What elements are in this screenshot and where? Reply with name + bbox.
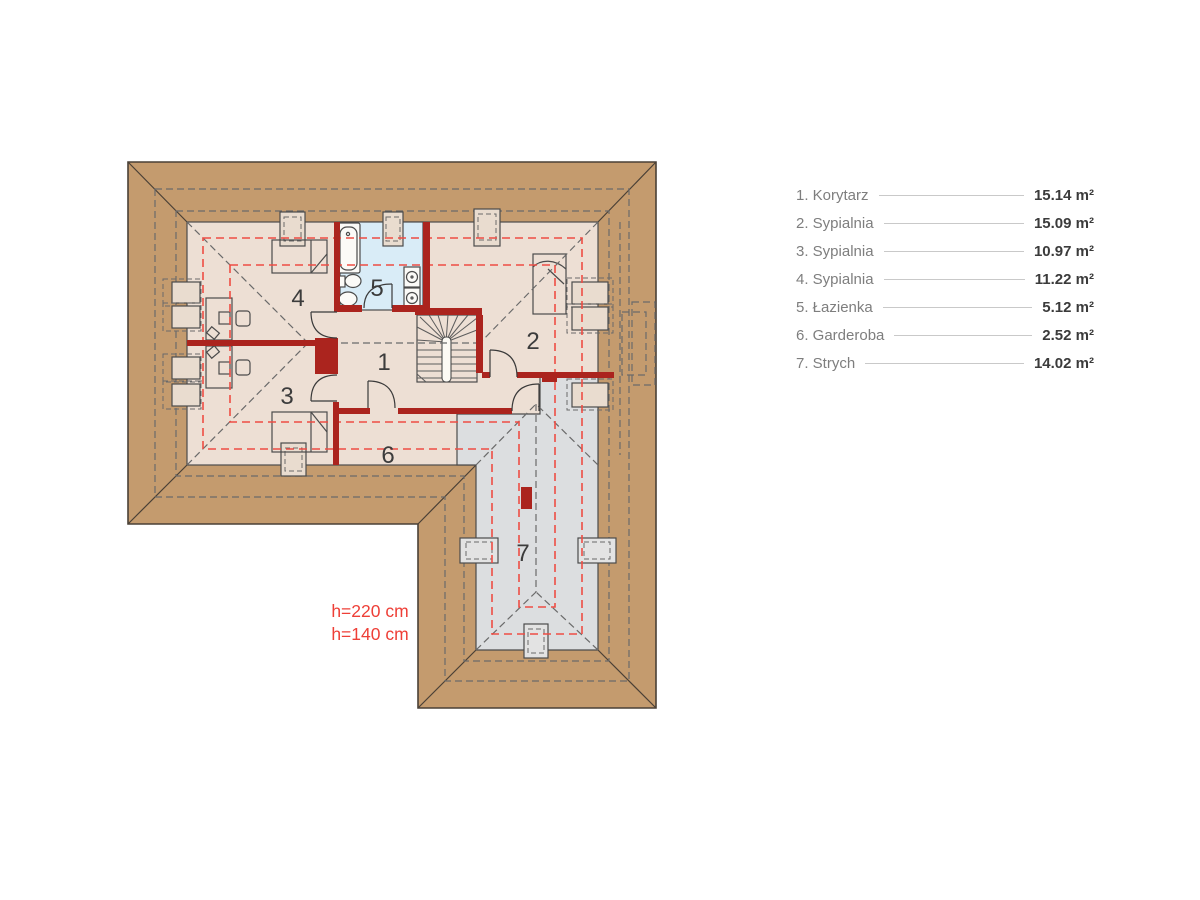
legend-divider-line: [884, 223, 1024, 224]
legend-room-area: 5.12 m²: [1042, 299, 1094, 316]
legend-row: 5. Łazienka 5.12 m²: [796, 293, 1094, 321]
legend-room-label: 4. Sypialnia: [796, 271, 874, 288]
legend-room-label: 7. Strych: [796, 355, 855, 372]
legend-room-label: 1. Korytarz: [796, 187, 869, 204]
room-number-5: 5: [370, 275, 383, 302]
washer: [404, 267, 420, 308]
room-number-4: 4: [291, 285, 304, 312]
legend-room-area: 10.97 m²: [1034, 243, 1094, 260]
height-labels: h=220 cm h=140 cm: [331, 601, 408, 644]
roof-window: [172, 306, 200, 328]
roof-window: [172, 282, 200, 303]
legend-room-area: 15.09 m²: [1034, 215, 1094, 232]
floor-plan-drawing: 1 2 3 4 5 6 7 h=220 cm h=140 cm: [0, 0, 1200, 900]
room-number-6: 6: [381, 442, 394, 469]
legend-divider-line: [883, 307, 1033, 308]
chimney-red: [521, 487, 532, 509]
legend-room-area: 11.22 m²: [1035, 271, 1094, 288]
roof-window: [572, 383, 608, 407]
floor-plan-page: 1 2 3 4 5 6 7 h=220 cm h=140 cm 1. Koryt…: [0, 0, 1200, 900]
legend-row: 1. Korytarz 15.14 m²: [796, 181, 1094, 209]
legend-divider-line: [879, 195, 1024, 196]
legend-room-area: 14.02 m²: [1034, 355, 1094, 372]
toilet: [338, 275, 361, 288]
legend-room-label: 3. Sypialnia: [796, 243, 874, 260]
legend-divider-line: [894, 335, 1032, 336]
legend-room-area: 15.14 m²: [1034, 187, 1094, 204]
attic-floor: [457, 377, 598, 650]
stair-newel: [442, 337, 451, 382]
room-legend: 1. Korytarz 15.14 m² 2. Sypialnia 15.09 …: [796, 181, 1094, 377]
roof-window: [572, 282, 608, 304]
legend-row: 2. Sypialnia 15.09 m²: [796, 209, 1094, 237]
legend-room-area: 2.52 m²: [1042, 327, 1094, 344]
legend-divider-line: [884, 279, 1025, 280]
room-number-2: 2: [526, 328, 539, 355]
height-label-140: h=140 cm: [331, 624, 408, 644]
roof-window: [172, 357, 200, 379]
room-number-7: 7: [516, 540, 529, 567]
legend-row: 7. Strych 14.02 m²: [796, 349, 1094, 377]
room-number-3: 3: [280, 383, 293, 410]
height-label-220: h=220 cm: [331, 601, 408, 621]
legend-row: 3. Sypialnia 10.97 m²: [796, 237, 1094, 265]
legend-room-label: 6. Garderoba: [796, 327, 884, 344]
staircase: [417, 315, 477, 382]
legend-room-label: 5. Łazienka: [796, 299, 873, 316]
legend-room-label: 2. Sypialnia: [796, 215, 874, 232]
roof-window: [572, 307, 608, 330]
roof-window: [172, 384, 200, 406]
legend-row: 4. Sypialnia 11.22 m²: [796, 265, 1094, 293]
legend-divider-line: [884, 251, 1024, 252]
room-number-1: 1: [377, 349, 390, 376]
legend-divider-line: [865, 363, 1024, 364]
legend-row: 6. Garderoba 2.52 m²: [796, 321, 1094, 349]
